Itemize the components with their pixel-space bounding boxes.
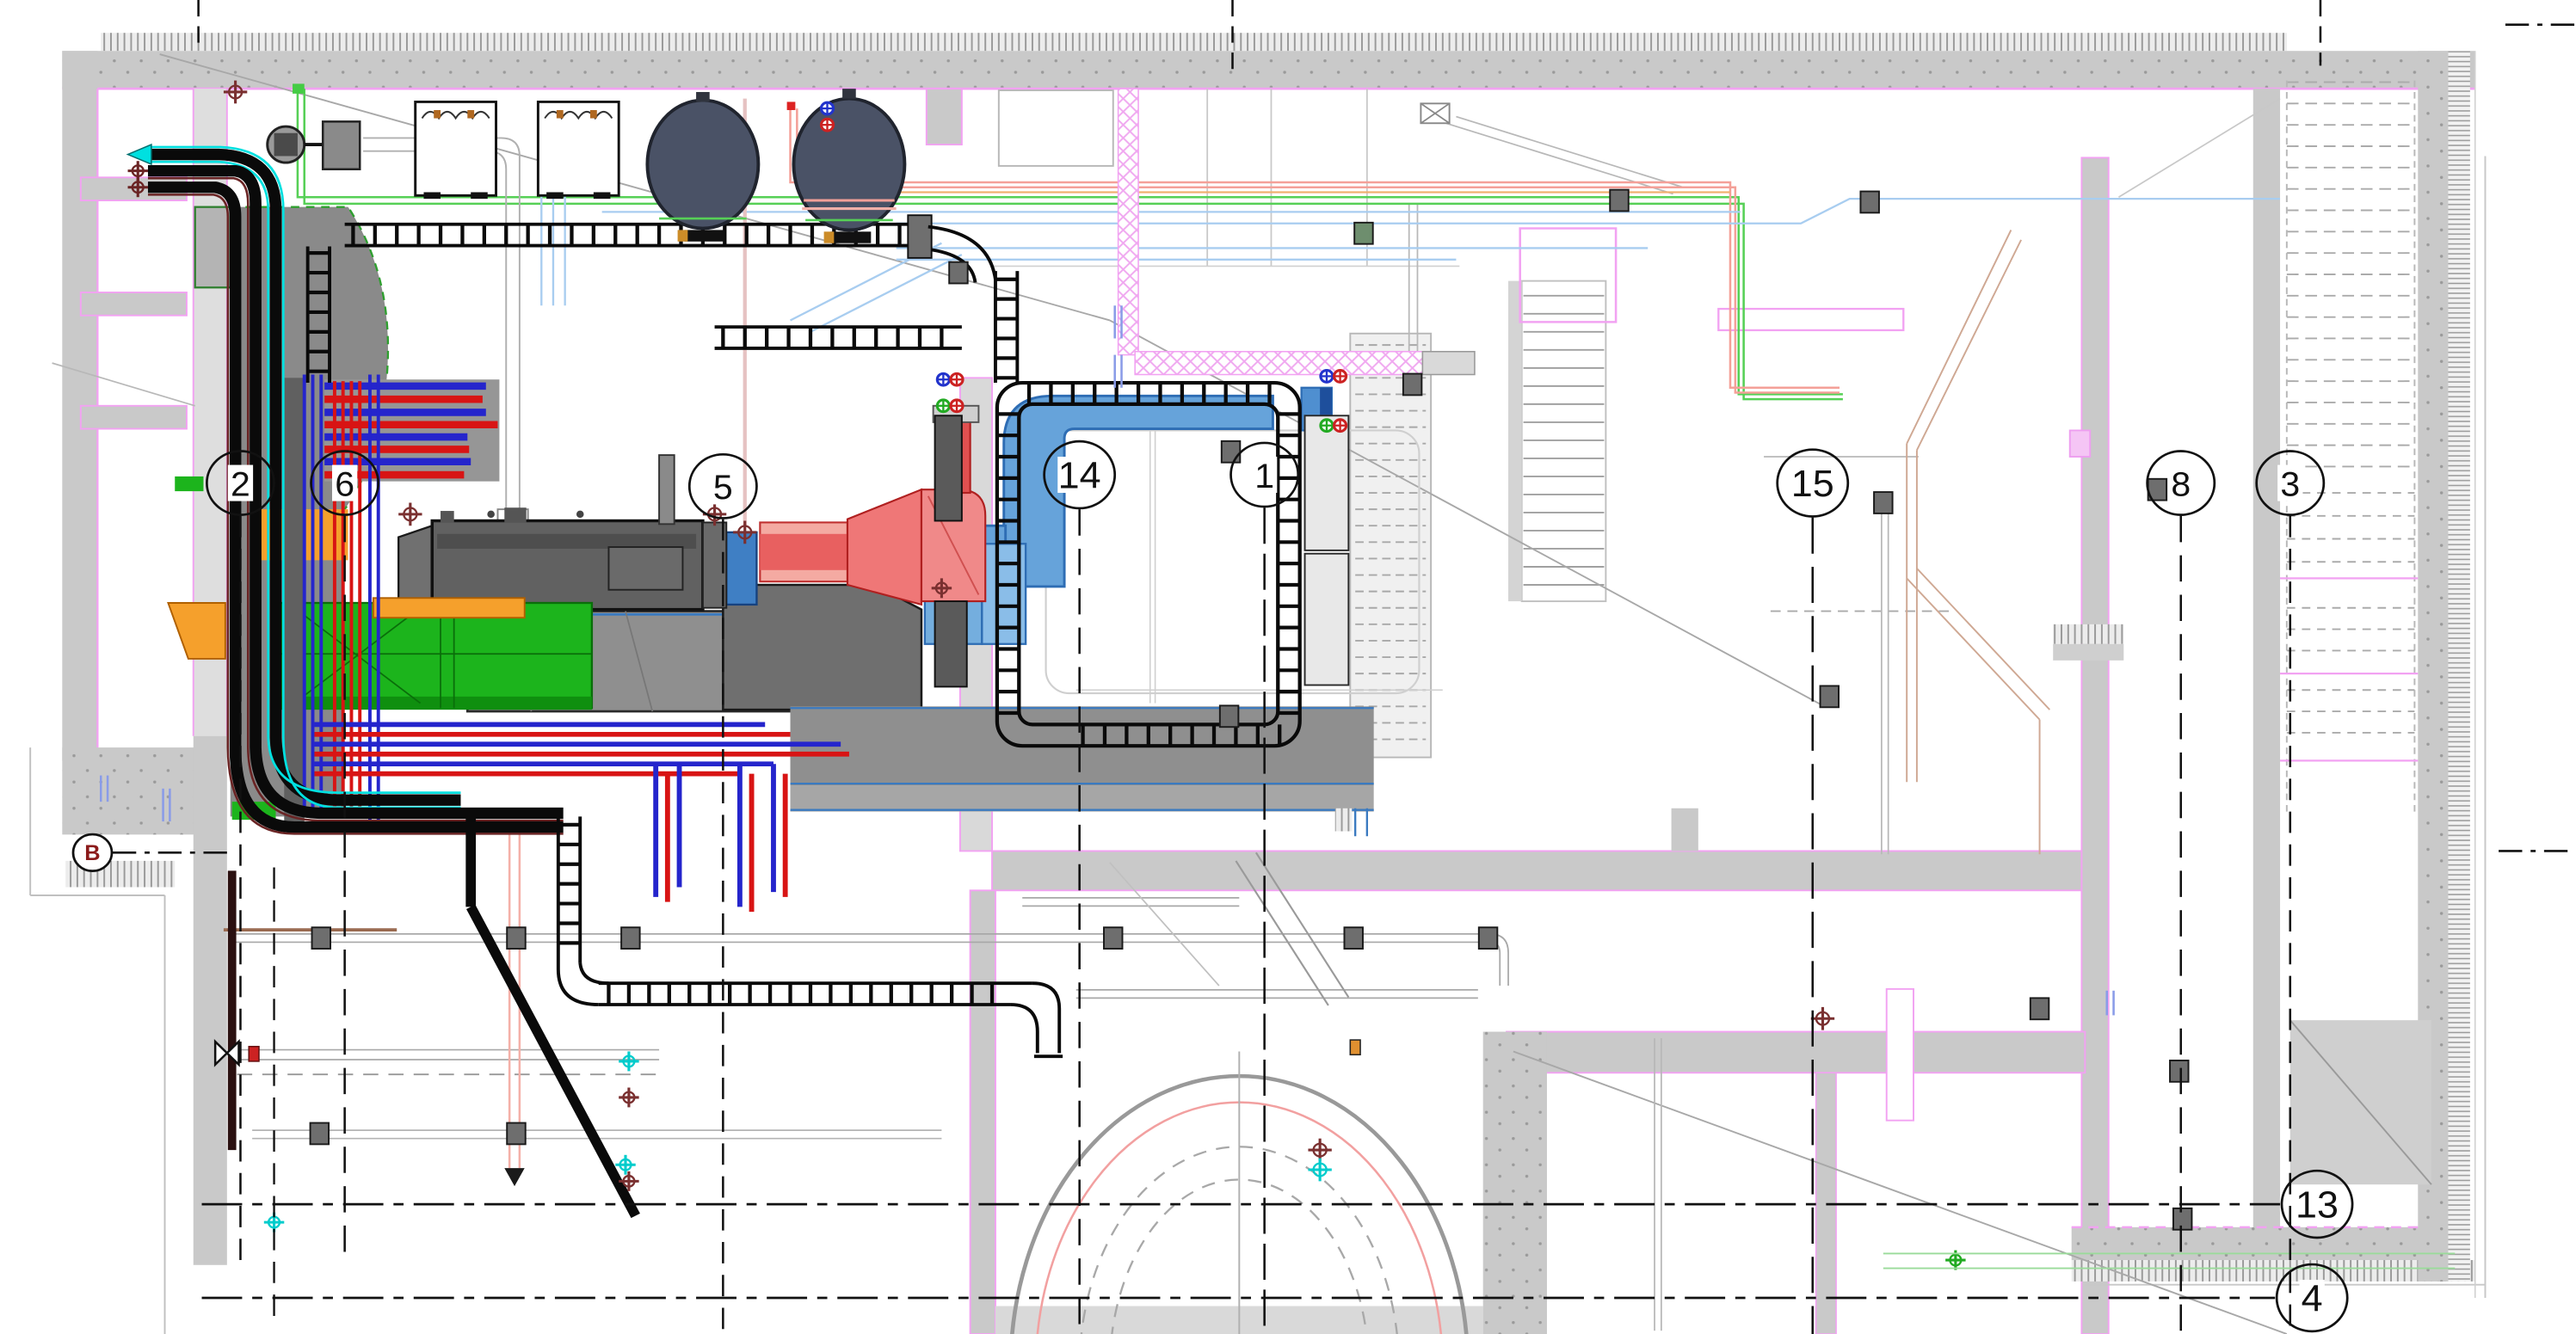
junction-box <box>1344 927 1362 949</box>
stair-gray-block <box>2053 644 2123 661</box>
blue-damper-rect <box>726 532 756 605</box>
left-bottom-stipple <box>62 747 194 834</box>
ahu-transition <box>398 526 432 609</box>
gray-panel-2 <box>1305 554 1349 685</box>
valve-blue <box>821 102 833 114</box>
ahu-vent-2 <box>576 511 584 518</box>
ahu-knob-1 <box>504 507 526 522</box>
mid-wall-stub <box>1672 808 1698 851</box>
junction-box <box>2173 1208 2191 1230</box>
pink-hatch-hstrip <box>1135 352 1422 375</box>
ahu-inner-rect <box>608 547 682 590</box>
lower-mid-band <box>1507 1032 2085 1073</box>
boiler-2-tab-2 <box>594 192 611 199</box>
valve-blue <box>1321 371 1333 383</box>
ahu-knob-2 <box>441 511 454 522</box>
junction-box <box>1222 441 1240 463</box>
boiler-1-tab-1 <box>423 192 441 199</box>
junction-box <box>621 927 639 949</box>
grid-bubble-label: B <box>84 841 100 865</box>
boiler-1 <box>416 101 496 195</box>
fan-core <box>274 133 298 157</box>
boiler-1-burner-2 <box>467 110 474 119</box>
grid-bubble-label: 1 <box>1254 456 1274 495</box>
valve-blue <box>937 373 949 385</box>
center-stair-rail <box>1508 281 1522 601</box>
damper-bar <box>659 455 675 524</box>
junction-box <box>1403 374 1421 396</box>
junction-box <box>2170 1060 2188 1082</box>
red-duct-inlet-core <box>760 534 847 570</box>
junction-box <box>2031 998 2049 1019</box>
tank-2 <box>793 99 904 231</box>
floor-plan-canvas[interactable]: 2651411583134B <box>0 0 2576 1334</box>
grid-bubble-label: 2 <box>231 464 250 503</box>
grid-bubble-label: 8 <box>2171 464 2191 503</box>
junction-box-green <box>1354 223 1372 244</box>
boiler-2-burner-1 <box>557 110 564 119</box>
mid-wall-band <box>992 851 2085 890</box>
red-valve-dot <box>249 1047 259 1061</box>
grid-bubble-label: 15 <box>1791 463 1834 504</box>
pink-shaft-rect <box>1887 989 1914 1121</box>
junction-box <box>507 1123 525 1145</box>
green-equipment-base <box>280 697 592 710</box>
junction-box <box>1610 190 1628 212</box>
top-wall-stipple <box>62 51 2474 89</box>
junction-box <box>1821 685 1839 707</box>
junction-box <box>949 262 967 284</box>
tray-junction-box <box>908 215 931 258</box>
tank-1-valve-orange <box>678 230 688 241</box>
top-wall-block <box>927 89 962 144</box>
grid-bubble-B[interactable]: B <box>73 834 112 871</box>
top-hatch-strip <box>101 33 2287 51</box>
boiler-2-burner-2 <box>590 110 597 119</box>
green-bit-wall <box>175 476 203 491</box>
grid-bubble-label: 13 <box>2296 1184 2339 1226</box>
boiler-2-tab-1 <box>546 192 564 199</box>
right-wall-a <box>2081 157 2108 1334</box>
duct-band-lower <box>791 785 1374 812</box>
boiler-1-tab-2 <box>471 192 488 199</box>
green-equipment <box>280 603 592 708</box>
pink-filled-rect <box>2070 430 2090 457</box>
valve-red <box>951 373 963 385</box>
grid-bubble-label: 3 <box>2280 464 2300 503</box>
junction-box <box>1104 927 1122 949</box>
tank-2-valve-orange <box>824 231 835 243</box>
stair-left-wall <box>2253 89 2280 1229</box>
orange-glyph <box>1350 1040 1360 1054</box>
valve-red <box>1334 420 1347 432</box>
vert-tray-strip <box>284 378 304 821</box>
boiler-1-burner-1 <box>434 110 441 119</box>
dome-right-stipple <box>1483 1032 1547 1334</box>
grid-bubble-label: 5 <box>713 468 733 507</box>
boiler-2 <box>538 101 619 195</box>
bottom-right-stipple <box>2072 1227 2447 1260</box>
dome-room-left-wall <box>971 890 995 1334</box>
junction-box <box>1220 705 1238 727</box>
ahu-vent-1 <box>487 511 495 518</box>
junction-box <box>507 927 525 949</box>
tank-1-stub <box>696 92 710 101</box>
hatch-end-gray <box>1422 352 1475 375</box>
junction-box <box>1860 192 1878 213</box>
grid-bubble-label: 14 <box>1058 455 1101 496</box>
band-end-hatch <box>1335 808 1353 832</box>
tank-1 <box>647 101 758 229</box>
gray-panel-1 <box>1305 415 1349 550</box>
junction-box <box>1479 927 1497 949</box>
junction-box <box>1874 492 1892 513</box>
green-line-marker <box>293 83 305 93</box>
drawing-root <box>0 0 2576 1334</box>
orange-band <box>373 598 525 618</box>
left-corridor-lower <box>194 736 227 1265</box>
tank-2-valve <box>830 231 871 243</box>
right-edge-hatch <box>2448 51 2469 1282</box>
valve-green <box>1321 420 1333 432</box>
junction-box <box>311 1123 329 1145</box>
valve-red <box>1334 371 1347 383</box>
dark-box-2 <box>935 601 967 686</box>
left-wall-stub-2 <box>81 292 187 316</box>
green-edged-box <box>195 207 231 288</box>
stair-hatch-block <box>2053 624 2123 644</box>
dark-box-1 <box>935 415 962 520</box>
valve-red <box>951 400 963 412</box>
red-tick <box>787 101 796 110</box>
tank-2-stub <box>842 89 856 98</box>
left-wall-stub-3 <box>81 406 187 429</box>
grid-bubble-label: 4 <box>2302 1278 2323 1319</box>
valve-green <box>937 400 949 412</box>
valve-red <box>821 119 833 131</box>
junction-box <box>312 927 330 949</box>
grid-bubble-label: 6 <box>335 464 354 503</box>
tank-1-valve <box>684 230 724 241</box>
fan-box <box>323 121 360 169</box>
